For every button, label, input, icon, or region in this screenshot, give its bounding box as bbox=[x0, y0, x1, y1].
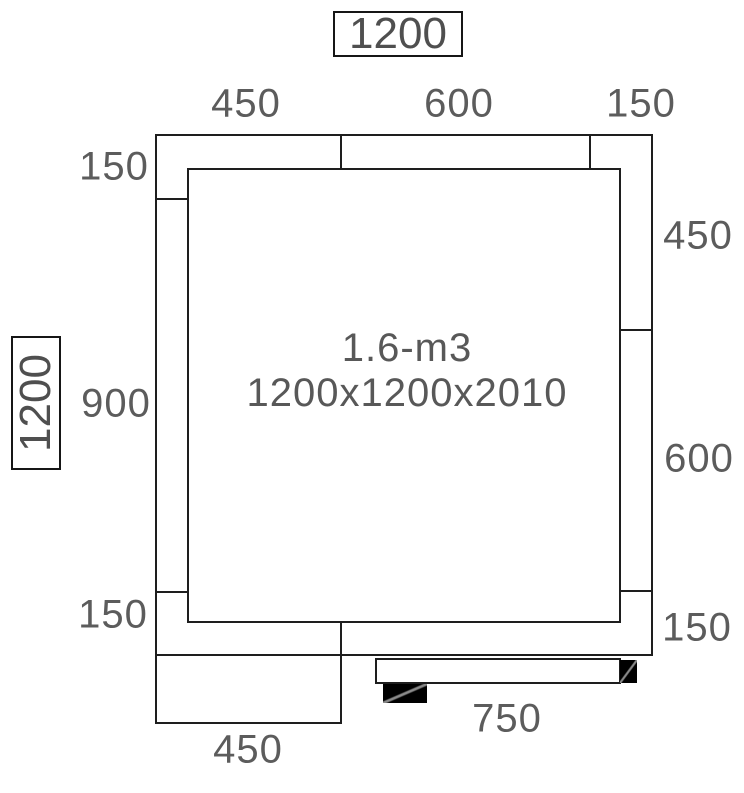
door-handle-block bbox=[383, 684, 427, 703]
overall-depth-dimension-box: 1200 bbox=[11, 336, 61, 470]
dim-left-150-bottom: 150 bbox=[78, 593, 148, 638]
right-wall-panel-joint-2 bbox=[619, 590, 651, 592]
top-wall-panel-joint-1 bbox=[340, 136, 342, 168]
left-wall-panel-joint-1 bbox=[157, 198, 187, 200]
dim-top-450: 450 bbox=[211, 82, 281, 127]
cold-room-plan-drawing: 1200 1200 1.6-m3 1200x1200x2010 450 600 … bbox=[0, 0, 744, 793]
left-wall-panel-joint-2 bbox=[157, 591, 187, 593]
right-wall-panel-joint-1 bbox=[619, 329, 651, 331]
bottom-wall-panel-joint bbox=[340, 623, 342, 656]
dim-left-150-top: 150 bbox=[79, 145, 149, 190]
overall-width-dimension-box: 1200 bbox=[333, 11, 463, 57]
room-volume-label: 1.6-m3 bbox=[247, 326, 568, 371]
overall-width-value: 1200 bbox=[349, 9, 447, 59]
overall-depth-value: 1200 bbox=[11, 354, 61, 452]
top-wall-panel-joint-2 bbox=[589, 136, 591, 168]
dim-left-900: 900 bbox=[81, 382, 151, 427]
dim-bottom-450: 450 bbox=[213, 728, 283, 773]
door-leaf bbox=[375, 658, 621, 684]
dim-right-450: 450 bbox=[663, 214, 733, 259]
door-hinge-block bbox=[620, 660, 637, 683]
dim-bottom-750: 750 bbox=[472, 697, 542, 742]
dim-top-600: 600 bbox=[424, 82, 494, 127]
room-size-label: 1200x1200x2010 bbox=[247, 371, 568, 416]
floor-extension-panel bbox=[155, 654, 342, 724]
dim-right-600: 600 bbox=[664, 437, 734, 482]
dim-top-150: 150 bbox=[606, 82, 676, 127]
dim-right-150: 150 bbox=[662, 606, 732, 651]
room-spec-note: 1.6-m3 1200x1200x2010 bbox=[247, 326, 568, 416]
